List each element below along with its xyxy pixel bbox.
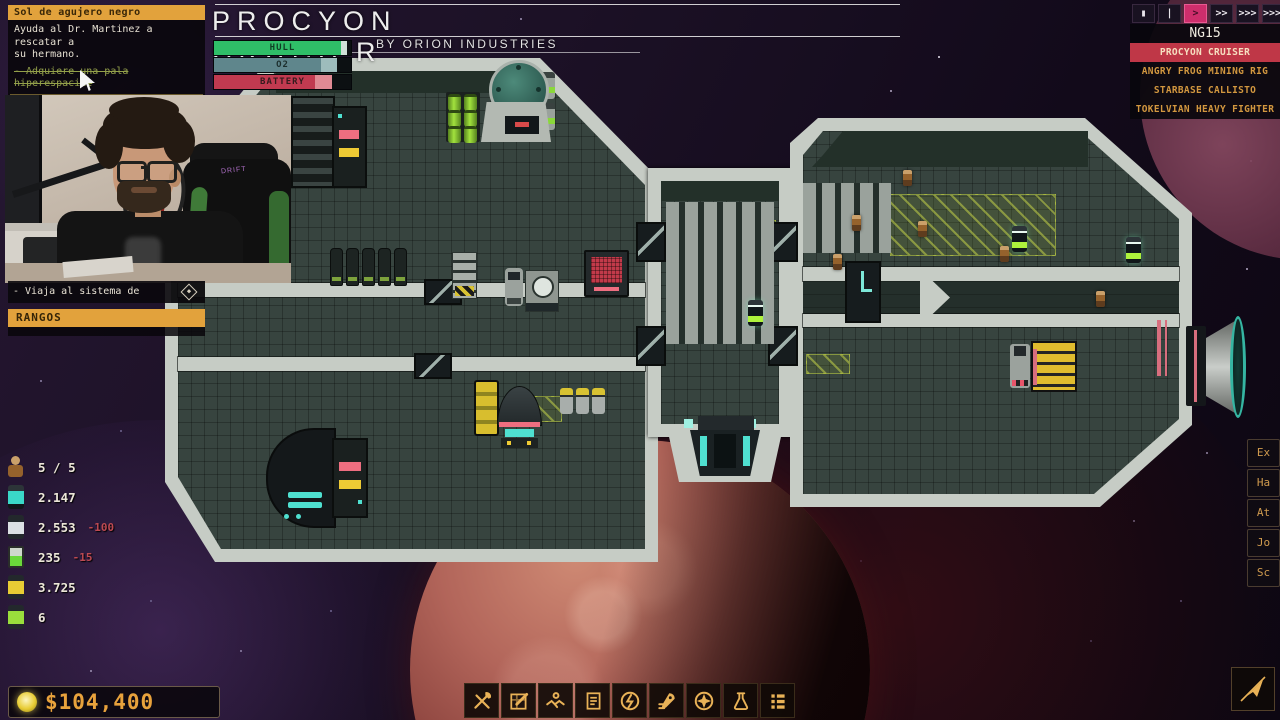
machine-rack-bank[interactable]: [803, 183, 891, 253]
side-button-ha[interactable]: Ha: [1247, 469, 1280, 497]
yellow-pillar-machine[interactable]: [474, 380, 499, 436]
objective-tracker: - Viaja al sistema de entrega: [8, 281, 171, 303]
resource-yellow: 3.725: [8, 574, 88, 600]
resource-white: 2.553-100: [8, 514, 114, 540]
locate-ship-button[interactable]: [1231, 667, 1275, 711]
trade-button[interactable]: [538, 683, 573, 718]
docking-clamp[interactable]: [291, 96, 335, 188]
crew-member[interactable]: [918, 221, 927, 237]
webcam-overlay: DRIFT: [5, 95, 291, 283]
red-display-console[interactable]: [584, 250, 629, 297]
speed-3x-button[interactable]: >>: [1210, 4, 1233, 23]
airlock-bay[interactable]: [690, 430, 760, 476]
waypoint-button[interactable]: [171, 281, 205, 303]
isotope-canister[interactable]: [1126, 237, 1141, 263]
money-value: $104,400: [45, 690, 154, 714]
crew-member[interactable]: [833, 254, 842, 270]
speed-5x-button[interactable]: >>>>: [1262, 4, 1280, 23]
crew-seat[interactable]: [378, 248, 391, 286]
engine-machine[interactable]: [1031, 341, 1077, 392]
quest-description-line: su hermano.: [14, 49, 199, 62]
subtitle-rule: [330, 52, 640, 53]
yellow-canister[interactable]: [576, 388, 589, 414]
green-canister-icon: [8, 605, 24, 629]
fleet-header: NG15: [1130, 24, 1280, 43]
corridor-door-shaft[interactable]: [845, 261, 881, 323]
streamer-beard: [117, 181, 171, 213]
speed-2x-button[interactable]: >: [1184, 4, 1207, 23]
interior-door[interactable]: [414, 353, 452, 379]
title-rule: [215, 4, 900, 5]
power-button[interactable]: [612, 683, 647, 718]
resource-green: 6: [8, 604, 58, 630]
power-bolt-icon: [619, 690, 641, 712]
fleet-item-angry-frog-mining-rig[interactable]: ANGRY FROG MINING RIG: [1130, 62, 1280, 81]
ranks-header[interactable]: RANGOS: [8, 309, 205, 327]
contracts-button[interactable]: [575, 683, 610, 718]
build-tools-icon: [471, 690, 493, 712]
yellow-canister-icon: [8, 575, 24, 599]
streamer-hair: [109, 97, 179, 123]
game-screen: PROCYON CRUISER BY ORION INDUSTRIES HULL…: [0, 0, 1280, 720]
cargo-floor-zone: [806, 354, 850, 374]
crew-member[interactable]: [903, 170, 912, 186]
storage-list-icon: [767, 690, 789, 712]
thruster-mount-stripe: [1165, 320, 1167, 376]
diamond-waypoint-icon: [181, 284, 198, 301]
floor-shadow-band: [812, 131, 1088, 167]
glasses-right-lens: [147, 161, 177, 183]
yellow-canister[interactable]: [560, 388, 573, 414]
interior-wall: [178, 357, 645, 371]
hull-bar-label: HULL: [214, 41, 351, 55]
thruster-mount-stripe: [1157, 320, 1161, 376]
glasses-left-lens: [117, 161, 147, 183]
battery-bar-label: BATTERY: [214, 75, 351, 89]
airlock-top-bar: [698, 416, 754, 430]
status-cabinet[interactable]: [332, 438, 368, 518]
credits-icon: [17, 692, 37, 712]
glasses-bridge: [141, 166, 149, 169]
resource-battery: 235-15: [8, 544, 92, 570]
chair-brand-label: DRIFT: [221, 166, 247, 176]
crew-seat[interactable]: [346, 248, 359, 286]
navigation-compass-icon: [693, 690, 715, 712]
fleet-item-tokelvian-heavy-fighter[interactable]: TOKELVIAN HEAVY FIGHTER: [1130, 100, 1280, 119]
side-button-jo[interactable]: Jo: [1247, 529, 1280, 557]
streamer-mouth: [131, 187, 157, 193]
ship-manufacturer-subtitle: BY ORION INDUSTRIES: [376, 37, 558, 51]
fleet-panel: NG15 PROCYON CRUISER ANGRY FROG MINING R…: [1130, 24, 1280, 119]
navigation-button[interactable]: [686, 683, 721, 718]
teal-canister-icon: [8, 485, 24, 509]
bottom-toolbar: [464, 683, 795, 718]
floor-shadow-band: [661, 181, 779, 201]
section-door[interactable]: [636, 222, 666, 262]
service-robot[interactable]: [505, 268, 523, 306]
status-cabinet[interactable]: [332, 106, 367, 188]
thruster-rim: [1230, 316, 1246, 418]
monitor: [5, 95, 42, 227]
ship-locator-icon: [1237, 673, 1269, 705]
research-button[interactable]: [723, 683, 758, 718]
storage-button[interactable]: [760, 683, 795, 718]
side-button-ex[interactable]: Ex: [1247, 439, 1280, 467]
crew-icon: [8, 456, 24, 478]
research-flask-icon: [730, 690, 752, 712]
side-button-at[interactable]: At: [1247, 499, 1280, 527]
battery-cell-icon: [8, 546, 24, 568]
crew-member[interactable]: [1096, 291, 1105, 307]
quest-description-line: Ayuda al Dr. Martinez a rescatar a: [14, 24, 199, 49]
desk: [5, 263, 291, 283]
reactor-base[interactable]: [481, 102, 551, 142]
isotope-canister[interactable]: [748, 300, 763, 326]
dome-machine[interactable]: [497, 386, 542, 448]
cargo-floor-zone: [890, 194, 1056, 256]
ranks-panel-edge: [8, 327, 205, 336]
crew-seat[interactable]: [394, 248, 407, 286]
gauge-console[interactable]: [525, 270, 559, 312]
section-door[interactable]: [636, 326, 666, 366]
build-button[interactable]: [464, 683, 499, 718]
o2-bar-label: O2: [214, 58, 351, 72]
thruster-base: [1186, 326, 1206, 406]
crew-seat[interactable]: [330, 248, 343, 286]
streamer-hair: [163, 119, 195, 163]
hull-bar: HULL: [213, 40, 352, 56]
crew-seat[interactable]: [362, 248, 375, 286]
money-display: $104,400: [8, 686, 220, 718]
interior-wall: [178, 283, 645, 297]
quest-objective-completed: - Adquiere una pala hiperespacial: [14, 66, 199, 91]
quest-title[interactable]: Sol de agujero negro: [8, 5, 205, 20]
contracts-clipboard-icon: [582, 690, 604, 712]
trade-handshake-icon: [545, 690, 567, 712]
speed-4x-button[interactable]: >>>: [1236, 4, 1259, 23]
o2-bar: O2: [213, 57, 352, 73]
mining-robot[interactable]: [1010, 344, 1030, 388]
travel-rocket-icon: [656, 690, 678, 712]
fleet-item-procyon-cruiser[interactable]: PROCYON CRUISER: [1130, 43, 1280, 62]
side-button-sc[interactable]: Sc: [1247, 559, 1280, 587]
speed-1x-button[interactable]: |: [1158, 4, 1181, 23]
game-speed-controls: ▮ | > >> >>> >>>>: [1132, 4, 1280, 23]
pause-button[interactable]: ▮: [1132, 4, 1155, 23]
crew-member[interactable]: [852, 215, 861, 231]
airlock-light: [684, 419, 693, 428]
battery-bar: BATTERY: [213, 74, 352, 90]
design-button[interactable]: [501, 683, 536, 718]
edit-design-icon: [508, 690, 530, 712]
resource-crew: 5 / 5: [8, 454, 88, 480]
ladder[interactable]: [452, 252, 477, 299]
resource-teal: 2.147: [8, 484, 88, 510]
white-canister-icon: [8, 515, 24, 539]
crew-member[interactable]: [1000, 246, 1009, 262]
travel-button[interactable]: [649, 683, 684, 718]
green-canister-rack[interactable]: [446, 92, 480, 142]
fleet-item-starbase-callisto[interactable]: STARBASE CALLISTO: [1130, 81, 1280, 100]
yellow-canister[interactable]: [592, 388, 605, 414]
isotope-canister[interactable]: [1012, 226, 1027, 252]
